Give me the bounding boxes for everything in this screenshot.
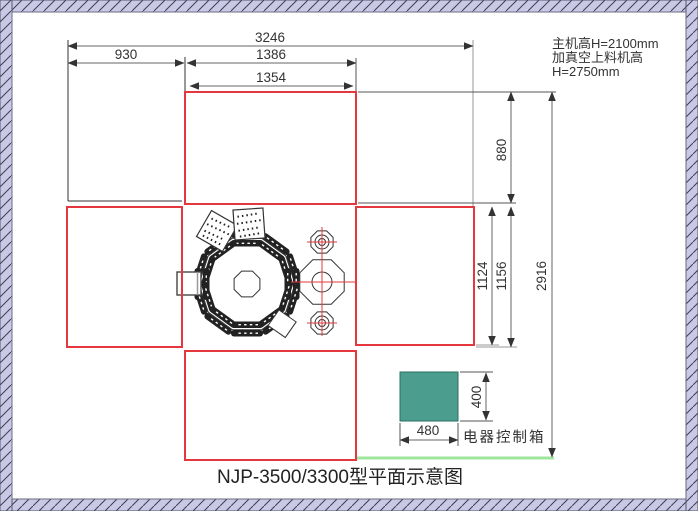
frame-left bbox=[0, 0, 12, 511]
capsule-hopper-right bbox=[233, 208, 265, 240]
control-box bbox=[400, 372, 458, 421]
side-unit-box bbox=[177, 272, 201, 295]
dim-label-box-height: 400 bbox=[469, 386, 484, 409]
plan-drawing-page: 3246 930 1386 1354 880 1124 1156 2916 40… bbox=[0, 0, 698, 511]
drawing-title: NJP-3500/3300型平面示意图 bbox=[217, 466, 463, 488]
dim-label-box-width: 480 bbox=[417, 423, 440, 438]
dim-label-top-depth: 880 bbox=[494, 139, 509, 162]
dim-label-main-width: 1386 bbox=[256, 47, 286, 62]
dim-label-feeder-width: 930 bbox=[115, 47, 138, 62]
note-line-3: H=2750mm bbox=[552, 64, 620, 79]
turntable-hub bbox=[234, 271, 260, 297]
dim-label-total-width: 3246 bbox=[255, 30, 285, 45]
frame-top bbox=[0, 0, 698, 12]
note-line-1: 主机高H=2100mm bbox=[552, 36, 659, 51]
dim-label-mid-depth-outer: 1156 bbox=[494, 261, 509, 290]
plan-drawing: 3246 930 1386 1354 880 1124 1156 2916 40… bbox=[0, 0, 698, 511]
dim-label-total-depth: 2916 bbox=[534, 261, 549, 291]
dim-label-inner-width: 1354 bbox=[256, 70, 287, 85]
dim-label-mid-depth-inner: 1124 bbox=[475, 261, 490, 291]
note-line-2: 加真空上料机高 bbox=[552, 50, 643, 65]
control-box-label: 电器控制箱 bbox=[463, 429, 546, 446]
frame-bottom bbox=[0, 499, 698, 511]
frame-right bbox=[686, 0, 698, 511]
